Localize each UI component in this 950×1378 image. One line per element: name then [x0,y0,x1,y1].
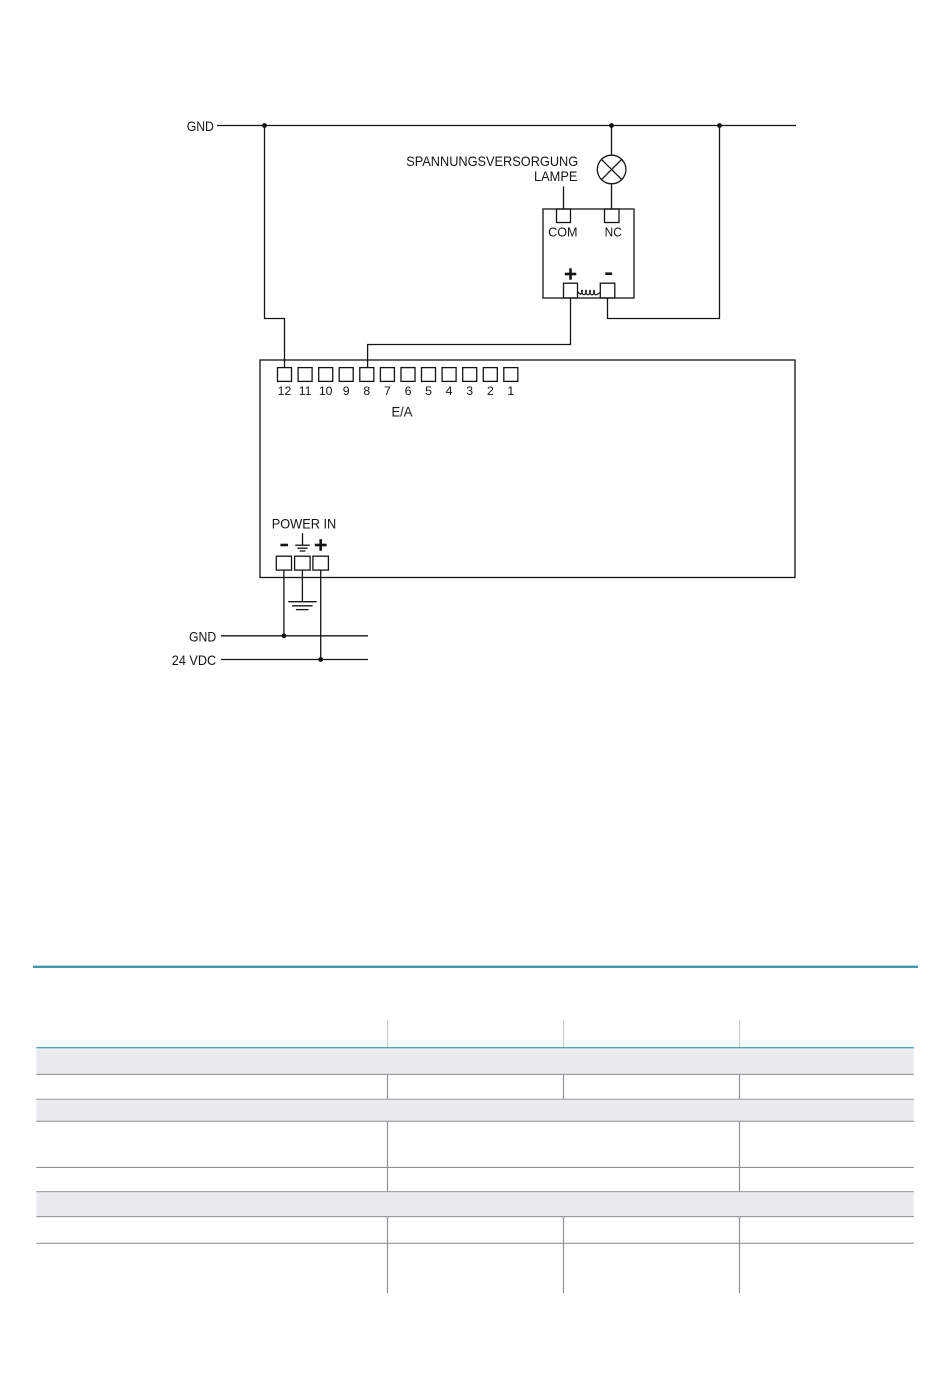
svg-text:POWER IN: POWER IN [272,517,337,532]
svg-text:8: 8 [363,384,370,398]
svg-text:9: 9 [343,384,350,398]
svg-text:5: 5 [425,384,432,398]
svg-text:4: 4 [446,384,453,398]
svg-text:COM: COM [548,226,577,240]
svg-text:3: 3 [466,384,473,398]
svg-text:2: 2 [487,384,494,398]
svg-text:7: 7 [384,384,391,398]
svg-text:10: 10 [319,384,333,398]
svg-text:SPANNUNGSVERSORGUNG: SPANNUNGSVERSORGUNG [406,154,578,169]
svg-text:1: 1 [507,384,514,398]
svg-text:6: 6 [405,384,412,398]
svg-text:LAMPE: LAMPE [534,169,577,184]
svg-text:12: 12 [278,384,292,398]
svg-text:GND: GND [189,629,216,644]
svg-text:E/A: E/A [392,404,414,419]
svg-text:24 VDC: 24 VDC [172,653,216,668]
svg-text:NC: NC [605,226,622,240]
svg-text:11: 11 [299,384,312,398]
svg-text:GND: GND [187,119,214,134]
